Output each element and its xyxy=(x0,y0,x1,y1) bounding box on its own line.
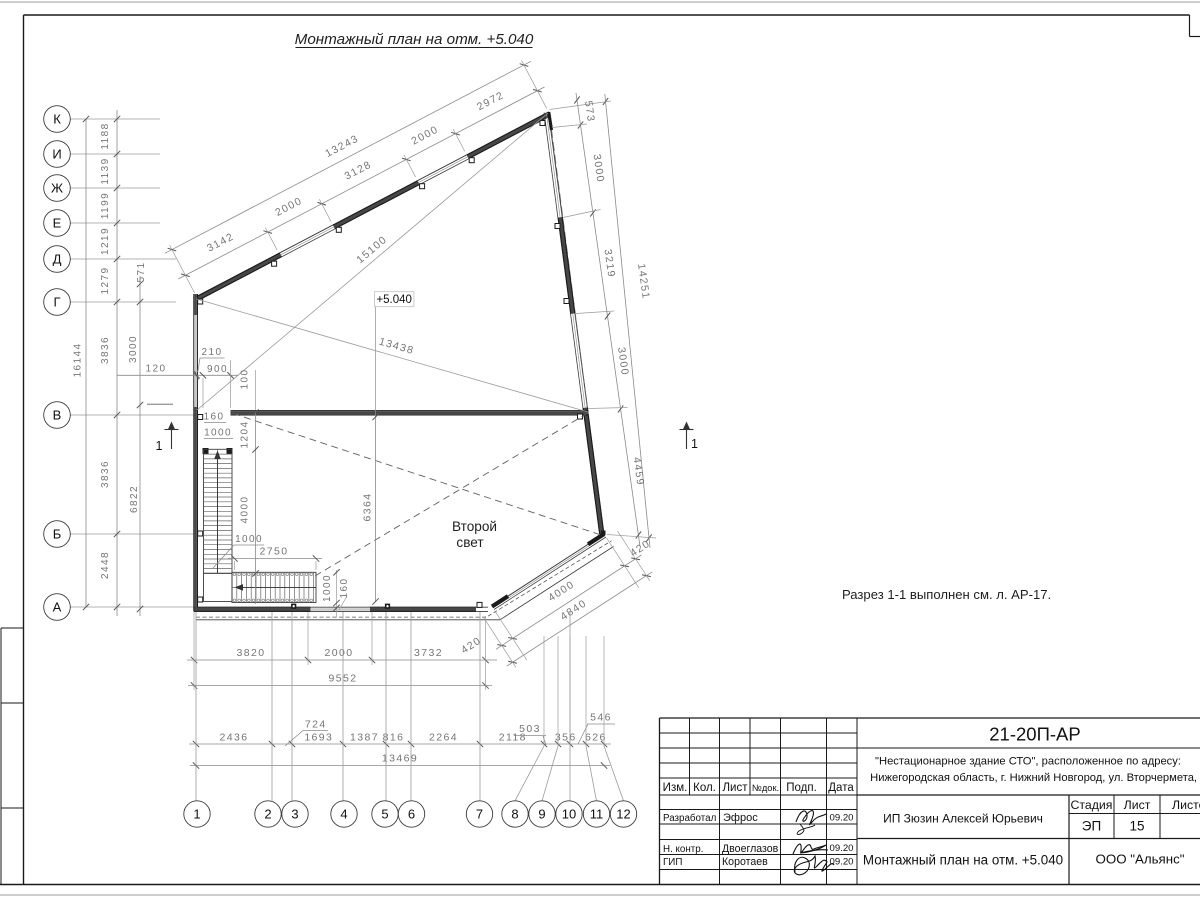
svg-text:ИП Зюзин Алексей Юрьевич: ИП Зюзин Алексей Юрьевич xyxy=(883,812,1043,826)
svg-text:1000: 1000 xyxy=(204,428,232,439)
svg-text:1000: 1000 xyxy=(235,534,263,545)
svg-text:21-20П-АР: 21-20П-АР xyxy=(989,724,1080,745)
svg-text:Нижегородская область, г. Нижн: Нижегородская область, г. Нижний Новгоро… xyxy=(870,772,1200,784)
svg-text:1139: 1139 xyxy=(100,157,111,184)
svg-text:Разработал: Разработал xyxy=(663,813,717,824)
svg-text:6: 6 xyxy=(408,807,415,822)
svg-text:6364: 6364 xyxy=(362,493,374,522)
svg-text:Монтажный план на отм. +5.040: Монтажный план на отм. +5.040 xyxy=(863,853,1063,868)
svg-text:3: 3 xyxy=(291,807,298,822)
svg-text:546: 546 xyxy=(590,712,612,724)
svg-text:2264: 2264 xyxy=(429,732,458,744)
svg-text:6822: 6822 xyxy=(129,485,140,513)
svg-text:К: К xyxy=(53,112,61,127)
svg-text:8: 8 xyxy=(511,807,518,822)
svg-text:свет: свет xyxy=(456,535,483,550)
svg-text:09.20: 09.20 xyxy=(829,813,853,824)
svg-text:3836: 3836 xyxy=(100,336,111,364)
svg-text:Стадия: Стадия xyxy=(1071,798,1113,812)
svg-text:Ж: Ж xyxy=(51,181,63,196)
svg-text:Подп.: Подп. xyxy=(786,782,817,794)
svg-text:№док.: №док. xyxy=(752,783,779,793)
svg-text:724: 724 xyxy=(305,719,327,731)
svg-text:В: В xyxy=(53,408,62,423)
svg-text:1199: 1199 xyxy=(100,192,111,219)
svg-text:2436: 2436 xyxy=(220,732,249,744)
svg-text:Разрез 1-1 выполнен см. л. АР-: Разрез 1-1 выполнен см. л. АР-17. xyxy=(842,587,1051,602)
svg-text:4: 4 xyxy=(340,807,347,822)
svg-text:1: 1 xyxy=(156,439,163,453)
svg-text:Б: Б xyxy=(53,527,62,542)
svg-text:3000: 3000 xyxy=(128,335,139,363)
svg-text:1204: 1204 xyxy=(240,421,251,449)
svg-text:571: 571 xyxy=(136,262,147,283)
svg-text:3820: 3820 xyxy=(237,647,266,659)
svg-text:1693: 1693 xyxy=(304,732,333,744)
svg-text:1219: 1219 xyxy=(100,227,111,255)
svg-text:120: 120 xyxy=(146,364,167,375)
svg-text:10: 10 xyxy=(562,807,576,822)
svg-text:12: 12 xyxy=(616,807,630,822)
svg-text:15: 15 xyxy=(1129,819,1144,834)
svg-text:3732: 3732 xyxy=(414,647,443,659)
svg-text:160: 160 xyxy=(339,578,350,599)
svg-text:210: 210 xyxy=(202,347,223,358)
svg-text:Кол.: Кол. xyxy=(693,782,716,794)
svg-text:09.20: 09.20 xyxy=(829,843,853,854)
svg-text:900: 900 xyxy=(207,364,228,375)
svg-text:2448: 2448 xyxy=(100,551,111,579)
svg-text:4000: 4000 xyxy=(240,496,251,524)
svg-text:626: 626 xyxy=(585,732,607,744)
svg-text:"Нестационарное здание СТО", р: "Нестационарное здание СТО", расположенн… xyxy=(875,756,1181,768)
svg-text:ГИП: ГИП xyxy=(663,857,682,868)
svg-text:1: 1 xyxy=(193,807,200,822)
svg-text:9: 9 xyxy=(538,807,545,822)
svg-text:2750: 2750 xyxy=(260,546,289,558)
svg-text:Эфрос: Эфрос xyxy=(723,812,758,824)
svg-text:Е: Е xyxy=(53,216,62,231)
svg-text:11: 11 xyxy=(590,807,604,822)
svg-text:Д: Д xyxy=(53,252,62,267)
svg-text:16144: 16144 xyxy=(73,343,84,378)
svg-text:503: 503 xyxy=(519,723,541,735)
svg-text:1188: 1188 xyxy=(100,122,111,149)
svg-text:Второй: Второй xyxy=(452,519,497,534)
svg-text:Дата: Дата xyxy=(828,782,854,794)
svg-text:А: А xyxy=(53,600,62,615)
svg-text:7: 7 xyxy=(476,807,483,822)
svg-text:160: 160 xyxy=(204,412,225,423)
svg-text:Г: Г xyxy=(53,295,60,310)
svg-text:5: 5 xyxy=(381,807,388,822)
svg-text:1279: 1279 xyxy=(100,267,111,295)
svg-text:1387: 1387 xyxy=(350,732,379,744)
svg-text:13469: 13469 xyxy=(382,753,418,765)
svg-text:Лист: Лист xyxy=(1124,798,1151,812)
svg-text:Листов: Листов xyxy=(1172,798,1200,812)
svg-text:2: 2 xyxy=(264,807,271,822)
svg-text:Изм.: Изм. xyxy=(663,782,688,794)
svg-text:3836: 3836 xyxy=(100,460,111,488)
svg-text:09.20: 09.20 xyxy=(829,856,853,867)
svg-text:ООО "Альянс": ООО "Альянс" xyxy=(1096,852,1185,867)
svg-text:1000: 1000 xyxy=(322,574,333,602)
svg-text:Коротаев: Коротаев xyxy=(722,856,768,868)
svg-text:100: 100 xyxy=(240,369,251,390)
svg-text:Двоеглазов: Двоеглазов xyxy=(722,843,779,855)
svg-text:Монтажный план на отм. +5.040: Монтажный план на отм. +5.040 xyxy=(295,31,534,48)
svg-text:+5.040: +5.040 xyxy=(376,294,412,306)
svg-text:Лист: Лист xyxy=(723,782,749,794)
svg-text:И: И xyxy=(52,147,61,162)
svg-text:1: 1 xyxy=(691,437,698,451)
svg-text:ЭП: ЭП xyxy=(1082,819,1101,834)
svg-text:2000: 2000 xyxy=(325,647,354,659)
svg-text:Н. контр.: Н. контр. xyxy=(663,844,703,855)
